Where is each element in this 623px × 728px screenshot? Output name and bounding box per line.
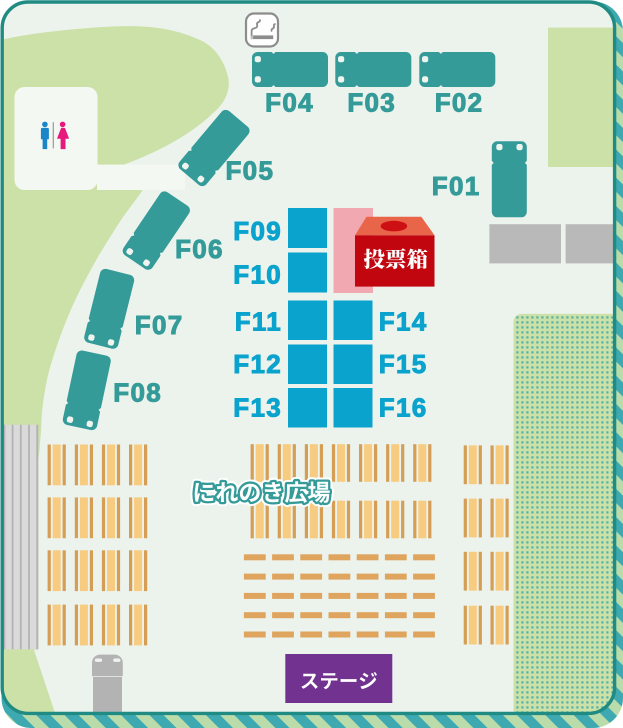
svg-text:F07: F07 [135,310,184,340]
svg-text:F08: F08 [113,378,162,408]
svg-text:F14: F14 [379,306,428,336]
svg-text:F01: F01 [432,171,481,201]
svg-text:F06: F06 [175,234,224,264]
svg-text:F05: F05 [226,156,275,186]
svg-text:F15: F15 [379,349,428,379]
svg-text:F11: F11 [235,306,282,336]
svg-text:F03: F03 [347,88,396,118]
svg-text:F16: F16 [379,392,428,422]
svg-text:F13: F13 [233,392,282,422]
svg-text:F02: F02 [435,88,484,118]
svg-text:F12: F12 [233,349,282,379]
svg-text:F09: F09 [233,216,282,246]
svg-text:F04: F04 [265,88,314,118]
svg-text:F10: F10 [233,260,282,290]
